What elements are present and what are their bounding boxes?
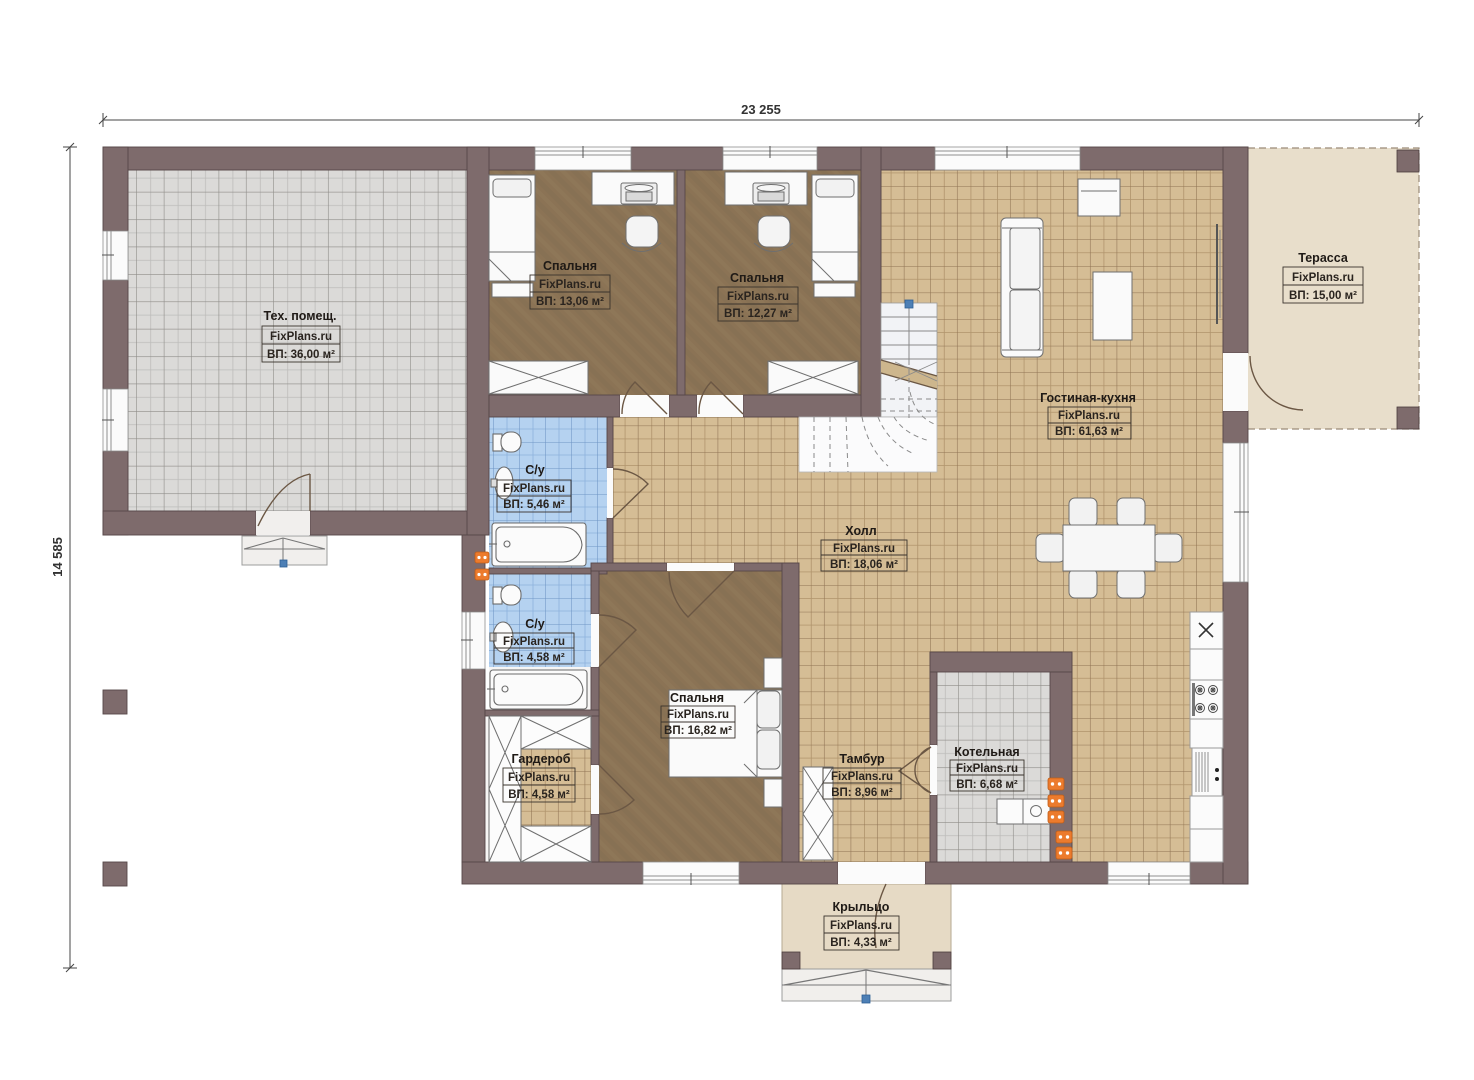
svg-text:23 255: 23 255 — [741, 102, 781, 117]
svg-text:Тамбур: Тамбур — [839, 752, 885, 766]
svg-text:Гостиная-кухня: Гостиная-кухня — [1040, 391, 1136, 405]
svg-text:FixPlans.ru: FixPlans.ru — [1292, 272, 1354, 284]
svg-text:ВП: 12,27 м²: ВП: 12,27 м² — [724, 308, 792, 320]
svg-text:FixPlans.ru: FixPlans.ru — [503, 636, 565, 648]
svg-text:FixPlans.ru: FixPlans.ru — [833, 543, 895, 555]
svg-text:ВП: 61,63 м²: ВП: 61,63 м² — [1055, 426, 1123, 438]
svg-text:ВП: 13,06 м²: ВП: 13,06 м² — [536, 296, 604, 308]
svg-text:ВП: 4,58 м²: ВП: 4,58 м² — [508, 789, 570, 801]
svg-text:ВП: 4,33 м²: ВП: 4,33 м² — [830, 937, 892, 949]
svg-text:Спальня: Спальня — [730, 271, 784, 285]
svg-text:FixPlans.ru: FixPlans.ru — [270, 331, 332, 343]
svg-text:FixPlans.ru: FixPlans.ru — [830, 920, 892, 932]
svg-text:ВП: 8,96 м²: ВП: 8,96 м² — [831, 787, 893, 799]
svg-text:FixPlans.ru: FixPlans.ru — [503, 483, 565, 495]
svg-text:С/у: С/у — [525, 463, 545, 477]
svg-text:ВП: 5,46 м²: ВП: 5,46 м² — [503, 499, 565, 511]
svg-text:Крыльцо: Крыльцо — [833, 900, 890, 914]
svg-text:FixPlans.ru: FixPlans.ru — [1058, 410, 1120, 422]
svg-text:14 585: 14 585 — [50, 537, 65, 577]
svg-text:Спальня: Спальня — [670, 691, 724, 705]
svg-text:Терасса: Терасса — [1298, 251, 1349, 265]
svg-text:FixPlans.ru: FixPlans.ru — [727, 291, 789, 303]
svg-text:Спальня: Спальня — [543, 259, 597, 273]
svg-text:FixPlans.ru: FixPlans.ru — [508, 772, 570, 784]
svg-text:Холл: Холл — [845, 524, 876, 538]
svg-text:FixPlans.ru: FixPlans.ru — [539, 279, 601, 291]
svg-text:ВП: 15,00 м²: ВП: 15,00 м² — [1289, 290, 1357, 302]
svg-text:ВП: 16,82 м²: ВП: 16,82 м² — [664, 725, 732, 737]
svg-text:ВП: 18,06 м²: ВП: 18,06 м² — [830, 559, 898, 571]
svg-text:ВП: 6,68 м²: ВП: 6,68 м² — [956, 779, 1018, 791]
svg-text:Гардероб: Гардероб — [511, 752, 570, 766]
svg-text:FixPlans.ru: FixPlans.ru — [667, 709, 729, 721]
svg-text:Котельная: Котельная — [954, 745, 1019, 759]
svg-text:С/у: С/у — [525, 617, 545, 631]
svg-text:FixPlans.ru: FixPlans.ru — [831, 771, 893, 783]
svg-text:ВП: 36,00 м²: ВП: 36,00 м² — [267, 349, 335, 361]
svg-text:FixPlans.ru: FixPlans.ru — [956, 763, 1018, 775]
svg-text:ВП: 4,58 м²: ВП: 4,58 м² — [503, 652, 565, 664]
svg-text:Тех. помещ.: Тех. помещ. — [264, 309, 337, 323]
